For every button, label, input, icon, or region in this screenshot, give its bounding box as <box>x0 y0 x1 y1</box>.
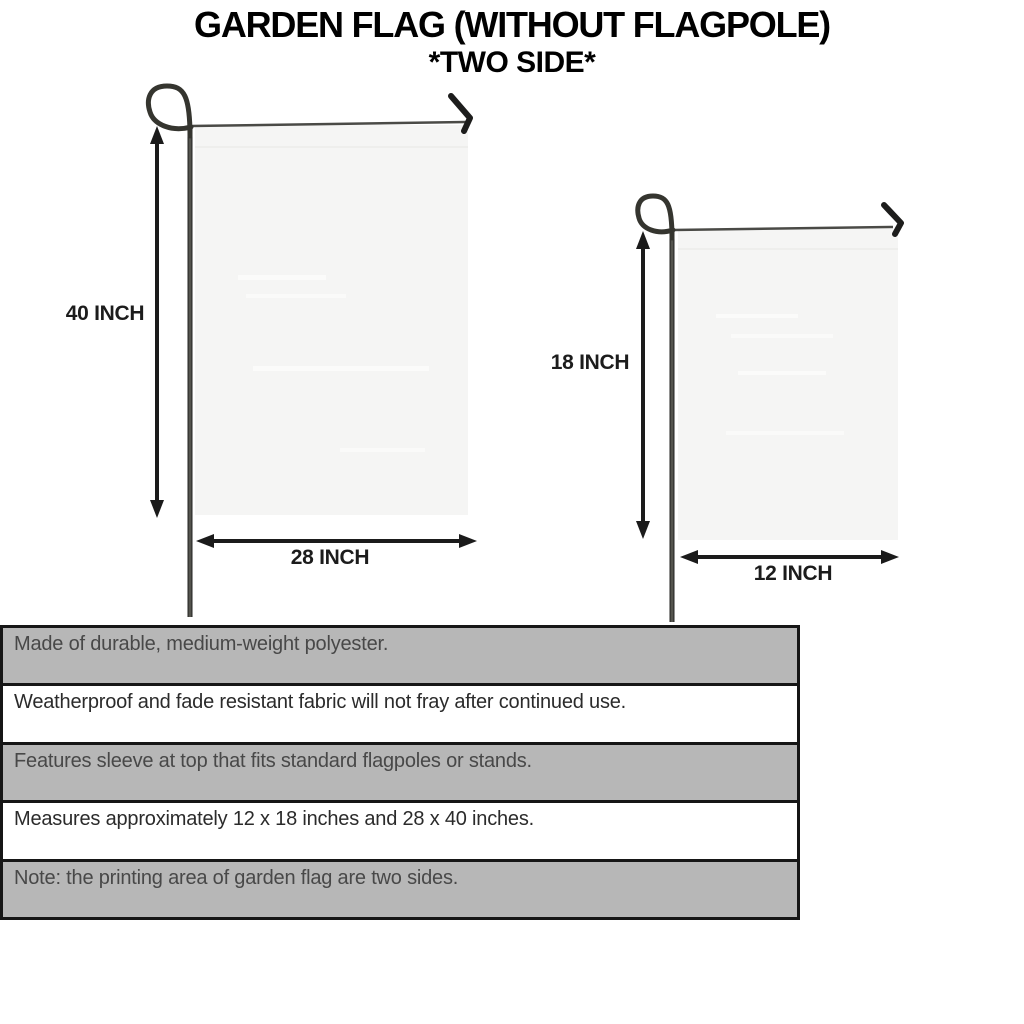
feature-row-note: Note: the printing area of garden flag a… <box>3 859 797 917</box>
garden-flag-infographic: GARDEN FLAG (WITHOUT FLAGPOLE) *TWO SIDE… <box>0 0 1024 1024</box>
small-flag-height-arrow <box>636 231 650 539</box>
large-flag-pole <box>188 127 193 617</box>
large-flag-width-label: 28 INCH <box>260 546 400 570</box>
small-flag-fabric <box>678 229 898 540</box>
large-flag-fabric <box>195 125 468 515</box>
feature-row-sleeve: Features sleeve at top that fits standar… <box>3 742 797 800</box>
feature-row-measures: Measures approximately 12 x 18 inches an… <box>3 800 797 858</box>
small-flag-width-label: 12 INCH <box>723 562 863 586</box>
feature-row-material: Made of durable, medium-weight polyester… <box>3 628 797 683</box>
small-flag-height-label: 18 INCH <box>520 351 660 375</box>
small-garden-flag <box>636 196 901 622</box>
large-flag-pole-loop-icon <box>148 86 191 136</box>
feature-table: Made of durable, medium-weight polyester… <box>0 625 800 920</box>
large-flag-height-label: 40 INCH <box>35 302 175 326</box>
feature-row-weatherproof: Weatherproof and fade resistant fabric w… <box>3 683 797 741</box>
small-flag-pole <box>670 231 675 622</box>
large-garden-flag <box>148 86 477 617</box>
